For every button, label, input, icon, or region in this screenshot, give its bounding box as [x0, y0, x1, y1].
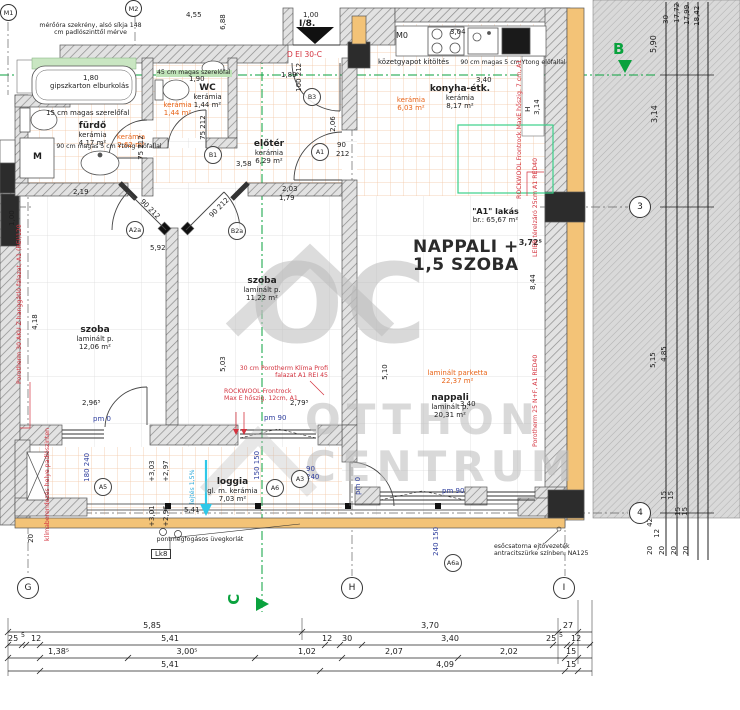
grid-marker-g: G [17, 577, 39, 599]
door-marker-b2a: B2a [228, 222, 246, 240]
entrance-door-spec: D EI 30-C [287, 51, 322, 59]
grid-marker-3: 3 [629, 196, 651, 218]
note-esocsatorna: esőcsatorna ejtővezeték antracitszürke s… [494, 544, 609, 558]
dim: 20 [659, 546, 667, 555]
dim: 3,40 [476, 77, 492, 85]
dim: pm 90 [264, 415, 286, 423]
dim: 6,88 [220, 14, 228, 30]
apartment-headline: NAPPALI +3,72⁵ 1,5 SZOBA [413, 239, 542, 275]
dim: 3,04 [450, 29, 466, 37]
room-loggia: loggia gl. m. kerámia 7,03 m² [190, 477, 275, 503]
dim: 1,80 [83, 75, 99, 83]
dim: 2,79⁵ [290, 400, 308, 408]
room-nappali: nappali laminált p. 20,31 m² [410, 393, 490, 419]
dim: 4,85 [661, 346, 669, 362]
dim-chain: 1,38⁵ [48, 648, 69, 657]
window-marker-a3: A3 [291, 470, 309, 488]
dim-chain: 25 [546, 635, 556, 644]
room-wc-alt: kerámia 1,44 m² [150, 101, 205, 117]
dim-chain: 5,41 [150, 635, 190, 644]
headline-line1: NAPPALI + [413, 237, 519, 257]
note-meter-cabinet: mérőóra szekrény, alsó síkja 148 cm padl… [38, 23, 143, 37]
dim: 30 [663, 15, 671, 24]
dim-chain: 12 [571, 635, 581, 644]
dim: 90 240 [306, 466, 328, 482]
fridge [502, 28, 530, 54]
wc-toilet-tank [155, 80, 163, 100]
room-konyha-alt: kerámia 6,03 m² [382, 96, 440, 112]
dim: 18,42 [694, 6, 702, 26]
dim: 75 212 [138, 135, 146, 160]
dim: 5,41 [184, 507, 200, 515]
dim: 3,14 [534, 99, 542, 115]
grid-marker-i: I [553, 577, 575, 599]
door-marker-b3: B3 [303, 88, 321, 106]
dim: 100 212 [296, 63, 304, 92]
dim: +3,03 [149, 460, 157, 481]
room-szoba2: szoba laminált p. 11,22 m² [222, 276, 302, 302]
dim: 17,99 [684, 5, 692, 25]
dim: 3,14 [651, 105, 660, 123]
neighbor-structure [593, 0, 740, 560]
note-lk8: Lk8 [151, 551, 171, 559]
dim-chain: 5 [559, 633, 563, 640]
toilet-tank [20, 108, 30, 132]
note-uvegkorlat: pontmegfogásos üvegkorlát [135, 537, 265, 544]
note-gipszkarton: gipszkarton elburkolás [50, 83, 129, 91]
dim: 75 212 [200, 115, 208, 140]
floor-plan-canvas: OC OTTHON CENTRUM M1 M2 G H I 3 4 B C B3… [0, 0, 740, 710]
dim: 4,55 [186, 12, 202, 20]
dim-chain: 2,07 [385, 648, 403, 657]
sink [468, 28, 498, 54]
dim: 5,92 [150, 245, 166, 253]
dim: 2,03 [282, 186, 298, 194]
washing-machine-label: M [33, 152, 42, 162]
note-porotherm25: Porotherm 25 N+F, A1 RED40 [533, 355, 540, 447]
apartment-name-block: "A1" lakás br.: 65,67 m² [448, 207, 543, 224]
dim: 20 [671, 546, 679, 555]
dim: pm 0 [93, 416, 111, 424]
dim: 2,19 [73, 189, 89, 197]
window-marker-a6a: A6a [444, 554, 462, 572]
note-porotherm30-klima: 30 cm Porotherm Klíma Profi falazat A1 R… [220, 366, 328, 380]
dim: +3,01 [149, 505, 157, 526]
dim: 2,06 [330, 116, 338, 132]
dim-chain: 3,70 [410, 622, 450, 631]
dim-chain: 3,40 [430, 635, 470, 644]
dim: 12 [654, 529, 662, 538]
dim: 150 150 [254, 451, 262, 480]
dim-chain: 4,09 [425, 661, 465, 670]
dim-chain: 2,02 [500, 648, 518, 657]
note-klima: klímaberendezés helye padlószinten [45, 428, 52, 541]
dim: 1,79 [279, 195, 295, 203]
apartment-area: br.: 65,67 m² [448, 216, 543, 224]
dim: 5,15 [650, 352, 658, 368]
dim-chain: 5,41 [150, 661, 190, 670]
dim: 1,00 [303, 12, 319, 20]
window-marker-a6: A6 [266, 479, 284, 497]
note-lejtes: lejtés 1,5% [190, 470, 197, 504]
dim: 3,40 [460, 401, 476, 409]
dim: 5,03 [220, 356, 228, 372]
grid-marker-m1: M1 [0, 4, 17, 21]
entrance-arrow [293, 27, 340, 45]
dim: 4,18 [32, 314, 40, 330]
dim: 17,72 [674, 3, 682, 23]
apartment-name: "A1" lakás [448, 207, 543, 216]
note-kozetgyapot: közetgyapot kitöltés [378, 59, 449, 67]
dim: 2,96⁵ [82, 400, 100, 408]
door-marker-a2a: A2a [126, 221, 144, 239]
dim: pm 90 [442, 488, 464, 496]
dim: +2,96 [163, 505, 171, 526]
door-marker-b1: B1 [204, 146, 222, 164]
dim: 8,44 [530, 274, 538, 290]
dim: +2,97 [163, 460, 171, 481]
marker-m0: M0 [396, 32, 408, 41]
headline-line2: 1,5 SZOBA [413, 257, 542, 275]
dim: 15 [668, 491, 676, 500]
dim: 1,00 [9, 210, 17, 226]
dim-chain: 12 [322, 635, 332, 644]
dim: pm 0 [355, 477, 363, 495]
dim-chain: 27 [560, 622, 576, 631]
note-ytong-kitchen: 90 cm magas 5 cm Ytong előfallal [458, 60, 568, 67]
window-marker-a5: A5 [94, 478, 112, 496]
dim-chain: 15 [566, 661, 576, 670]
watermark-line2: CENTRUM [305, 442, 579, 491]
dim: H [525, 107, 533, 112]
dim: 15 [682, 507, 690, 516]
room-nappali-alt: laminált parketta 22,37 m² [400, 369, 515, 385]
note-rockwool7: ROCKWOOL Frontrock MaxE hőszig. 7 cm, A1 [517, 60, 524, 199]
dim-chain: 25 [8, 635, 18, 644]
room-szoba1: szoba laminált p. 12,06 m² [55, 325, 135, 351]
dim: 3,58 [236, 161, 252, 169]
dim-chain: 12 [31, 635, 41, 644]
dim: 5,10 [382, 364, 390, 380]
dim-chain: 5,85 [132, 622, 172, 631]
door-marker-a1: A1 [311, 143, 329, 161]
dim: 5,90 [650, 35, 659, 53]
dim: 50 [0, 103, 1, 112]
section-marker-c: C [226, 594, 243, 605]
section-marker-b: B [613, 41, 624, 58]
watermark-monogram: OC [250, 240, 428, 368]
dim: 90 [337, 142, 346, 150]
dim-chain: 5 [21, 633, 25, 640]
note-ytong-bath: 90 cm magas 5 cm Ytong előfallal [54, 144, 164, 151]
dim: 240 150 [433, 527, 441, 556]
grid-marker-4: 4 [629, 502, 651, 524]
dimension-lines [5, 600, 593, 676]
dim: 212 [336, 151, 349, 159]
dim-chain: 30 [342, 635, 352, 644]
dim: 20 [683, 546, 691, 555]
entrance-unit-label: I/8. [299, 19, 315, 29]
grid-marker-h: H [341, 577, 363, 599]
note-porotherm30: Porotherm 30 AKU Z hanggátló falazat, A1… [17, 224, 24, 384]
grid-marker-m2: M2 [125, 0, 142, 17]
note-szerelofal15: 15 cm magas szerelőfal [46, 110, 129, 118]
dim-chain: 15 [566, 648, 576, 657]
note-leier: LEIER térelzáró 25cm A1 RED40 [533, 158, 540, 257]
dim-chain: 1,02 [298, 648, 316, 657]
dim: 180 240 [84, 453, 92, 482]
dim: 20 [647, 546, 655, 555]
dim: 1,90 [189, 76, 205, 84]
dim: 20 [28, 534, 36, 543]
dim-chain: 3,00⁵ [165, 648, 209, 657]
